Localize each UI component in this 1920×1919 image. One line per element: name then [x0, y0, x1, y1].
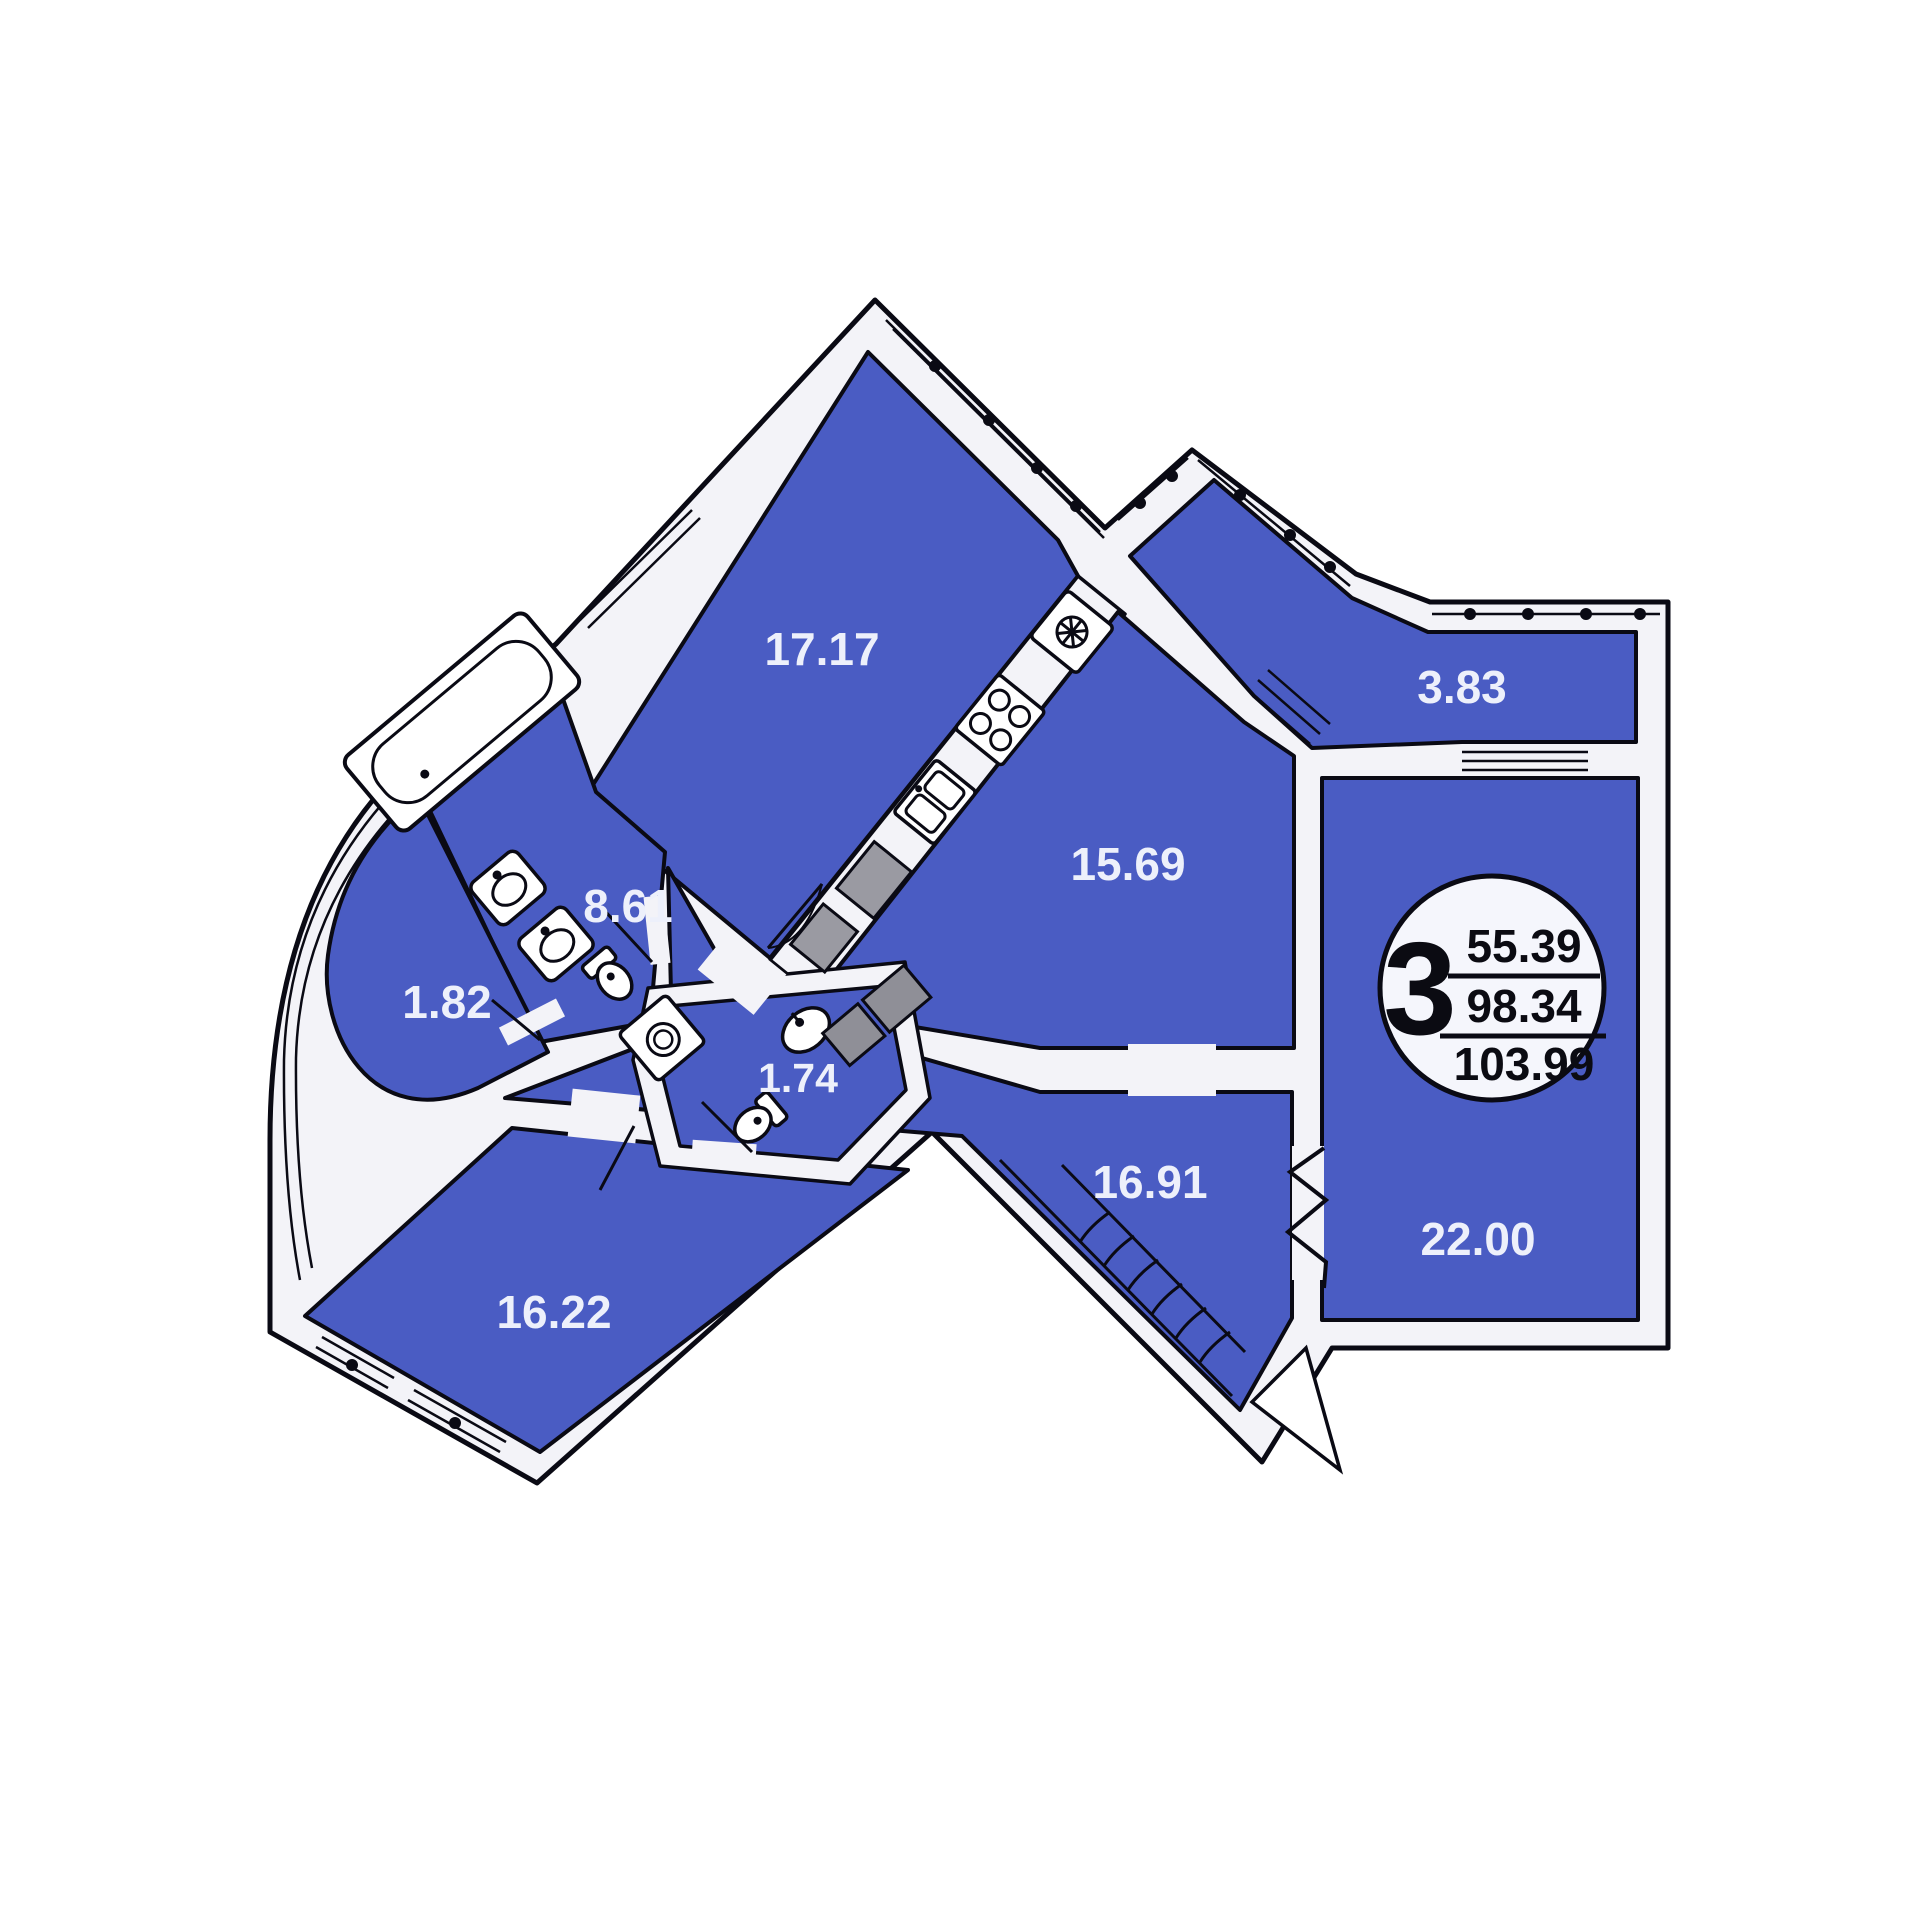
badge-middle-area: 98.34	[1466, 980, 1582, 1032]
room-area-label-balcony-top: 3.83	[1417, 661, 1507, 713]
badge-total-area: 103.99	[1454, 1038, 1595, 1090]
room-area-label-kitchen: 15.69	[1070, 838, 1185, 890]
badge-rooms-count: 3	[1383, 915, 1456, 1062]
badge-living-area: 55.39	[1466, 920, 1581, 972]
floor-plan-svg: 17.17 8.61 1.82 1.74 15.69 3.83 16.91 16…	[0, 0, 1920, 1919]
floor-plan-page: 17.17 8.61 1.82 1.74 15.69 3.83 16.91 16…	[0, 0, 1920, 1919]
bedroom-right-zigzag-door	[1288, 1146, 1326, 1288]
kitchen-doorway	[1128, 1044, 1216, 1096]
room-area-label-balcony-left: 1.82	[402, 976, 492, 1028]
info-badge: 3 55.39 98.34 103.99	[1380, 876, 1606, 1100]
room-area-label-bedroom-bottom: 16.22	[496, 1286, 611, 1338]
room-area-label-bathroom: 8.61	[583, 880, 673, 932]
room-area-label-wc: 1.74	[758, 1055, 838, 1101]
room-area-label-hallway: 16.91	[1092, 1156, 1207, 1208]
room-area-label-living: 17.17	[764, 623, 879, 675]
room-area-label-bedroom-right: 22.00	[1420, 1213, 1535, 1265]
